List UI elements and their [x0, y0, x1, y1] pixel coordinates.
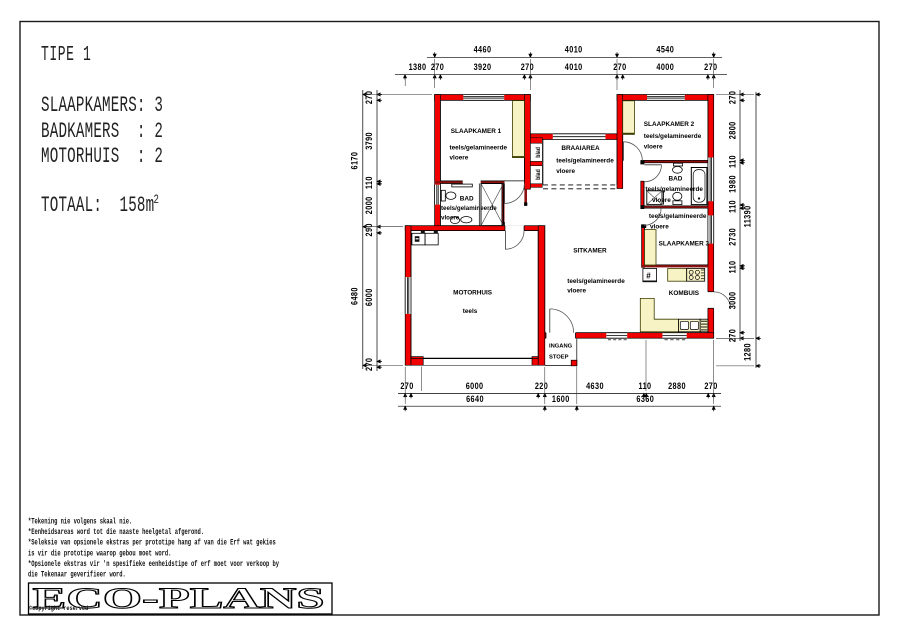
svg-text:270: 270 — [613, 62, 626, 72]
svg-text:110: 110 — [364, 176, 374, 189]
svg-text:vloere: vloere — [650, 223, 669, 230]
svg-text:4010: 4010 — [565, 62, 583, 72]
svg-text:6000: 6000 — [466, 381, 484, 391]
svg-text:2: 2 — [154, 194, 159, 208]
svg-text:*Opsionele ekstras vir 'n spes: *Opsionele ekstras vir 'n spesifieke een… — [28, 560, 279, 569]
svg-text:MOTORHUIS : 2: MOTORHUIS : 2 — [41, 144, 163, 169]
svg-text:BADKAMERS : 2: BADKAMERS : 2 — [41, 119, 163, 144]
svg-text:6360: 6360 — [636, 394, 654, 404]
svg-text:die Tekenaar geverifieer word.: die Tekenaar geverifieer word. — [28, 571, 126, 580]
svg-text:3790: 3790 — [364, 132, 374, 150]
svg-text:teels/gelamineerde: teels/gelamineerde — [567, 278, 625, 285]
svg-text:6480: 6480 — [350, 287, 360, 305]
svg-text:teels/gelamineerde: teels/gelamineerde — [556, 157, 614, 164]
svg-text:270: 270 — [521, 62, 534, 72]
svg-text:vloere: vloere — [567, 288, 586, 295]
svg-text:STOEP: STOEP — [549, 355, 569, 361]
svg-text:teels/gelamineerde: teels/gelamineerde — [450, 144, 508, 151]
svg-text:1980: 1980 — [728, 175, 738, 193]
svg-text:vloere: vloere — [644, 143, 663, 150]
svg-text:2730: 2730 — [728, 228, 738, 246]
svg-text:teels/gelamineerde: teels/gelamineerde — [649, 213, 707, 220]
svg-text:110: 110 — [728, 200, 738, 213]
svg-text:MOTORHUIS: MOTORHUIS — [453, 290, 493, 297]
svg-text:4010: 4010 — [565, 45, 583, 55]
svg-text:teels/gelamineerde: teels/gelamineerde — [644, 133, 702, 140]
svg-text:blad: blad — [536, 169, 543, 180]
svg-text:2800: 2800 — [728, 121, 738, 139]
svg-text:270: 270 — [431, 62, 444, 72]
svg-text:TOTAAL: 158m: TOTAAL: 158m — [41, 193, 154, 218]
svg-text:4540: 4540 — [656, 45, 674, 55]
svg-text:vloere: vloere — [556, 168, 575, 175]
svg-text:teels: teels — [463, 308, 478, 315]
svg-text:110: 110 — [639, 381, 652, 391]
svg-text:vloere: vloere — [652, 197, 671, 204]
svg-text:vloere: vloere — [441, 215, 460, 222]
svg-text:270: 270 — [704, 381, 717, 391]
svg-text:is vir die prototipe waarop ge: is vir die prototipe waarop gebou moet w… — [28, 549, 171, 558]
svg-text:1380: 1380 — [409, 62, 427, 72]
svg-text:270: 270 — [728, 329, 738, 342]
svg-text:270: 270 — [728, 91, 738, 104]
svg-text:6000: 6000 — [364, 288, 374, 306]
svg-text:110: 110 — [728, 261, 738, 274]
svg-text:*Tekening nie volgens skaal ni: *Tekening nie volgens skaal nie. — [28, 518, 132, 527]
svg-text:4630: 4630 — [586, 381, 604, 391]
svg-text:6640: 6640 — [466, 394, 484, 404]
svg-text:KOMBUIS: KOMBUIS — [669, 290, 700, 297]
svg-text:TIPE 1: TIPE 1 — [41, 44, 91, 67]
svg-text:11390: 11390 — [743, 205, 753, 227]
svg-text:270: 270 — [364, 91, 374, 104]
svg-text:SLAAPKAMER 2: SLAAPKAMER 2 — [644, 121, 695, 128]
svg-text:INGANG: INGANG — [549, 344, 573, 350]
svg-text:4000: 4000 — [656, 62, 674, 72]
svg-text:teels/gelamineerde: teels/gelamineerde — [441, 205, 497, 212]
svg-text:blad: blad — [536, 147, 543, 158]
svg-text:3000: 3000 — [728, 291, 738, 309]
svg-text:teels/gelamineerde: teels/gelamineerde — [645, 186, 703, 193]
svg-text:2000: 2000 — [364, 196, 374, 214]
svg-text:110: 110 — [728, 155, 738, 168]
svg-text:3920: 3920 — [474, 62, 492, 72]
svg-text:270: 270 — [704, 62, 717, 72]
svg-text:vloere: vloere — [450, 154, 469, 161]
svg-text:1280: 1280 — [743, 343, 753, 361]
svg-text:SLAAPKAMER 1: SLAAPKAMER 1 — [451, 128, 502, 135]
svg-text:SITKAMER: SITKAMER — [573, 247, 607, 254]
svg-text:©copyright reserved: ©copyright reserved — [29, 604, 88, 612]
svg-text:6170: 6170 — [350, 152, 360, 170]
svg-text:*Seleksie van opsionele ekstra: *Seleksie van opsionele ekstras per prot… — [28, 539, 276, 548]
svg-text:4460: 4460 — [474, 45, 492, 55]
svg-text:SLAAPKAMER 3: SLAAPKAMER 3 — [659, 241, 710, 248]
svg-text:BAD: BAD — [668, 176, 682, 183]
svg-text:1600: 1600 — [552, 394, 570, 404]
svg-text:*Eenheidsareas word tot die na: *Eenheidsareas word tot die naaste heelg… — [28, 528, 204, 537]
svg-text:SLAAPKAMERS: 3: SLAAPKAMERS: 3 — [41, 93, 163, 118]
svg-text:220: 220 — [535, 381, 548, 391]
svg-text:BAD: BAD — [460, 196, 474, 203]
svg-text:2880: 2880 — [668, 381, 686, 391]
svg-text:270: 270 — [400, 381, 413, 391]
svg-text:#: # — [646, 272, 651, 281]
svg-text:BRAAIAREA: BRAAIAREA — [561, 145, 600, 152]
